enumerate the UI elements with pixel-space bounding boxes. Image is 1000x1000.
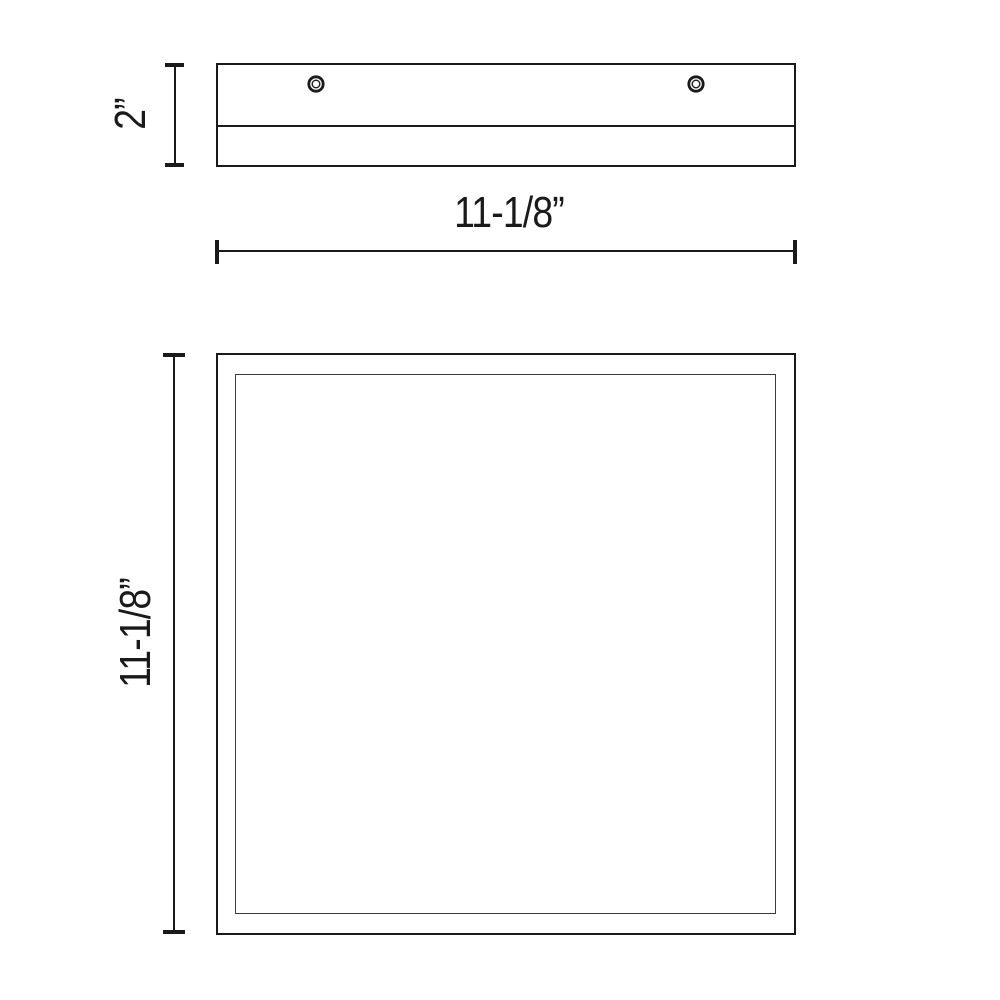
side-height-dimension-cap-bottom [165, 163, 184, 167]
mounting-screw-left-icon [306, 74, 326, 94]
dimension-drawing-canvas: 2” 11-1/8” 11-1/8” [0, 0, 1000, 1000]
front-height-dimension-label: 11-1/8” [114, 578, 158, 688]
width-dimension-label: 11-1/8” [454, 191, 564, 235]
front-view-inner-panel [235, 374, 776, 914]
front-height-dimension-cap-top [163, 353, 185, 357]
mounting-screw-right-icon [686, 74, 706, 94]
side-height-dimension-line [174, 65, 176, 166]
side-height-dimension-label: 2” [109, 98, 153, 130]
side-height-dimension-cap-top [165, 63, 184, 67]
side-view-seam-line [218, 125, 794, 127]
side-view-body-outline [216, 63, 796, 167]
width-dimension-tick-right [793, 240, 797, 264]
width-dimension-tick-left [215, 240, 219, 264]
front-height-dimension-line [173, 355, 175, 933]
width-dimension-line [217, 250, 795, 252]
front-height-dimension-cap-bottom [163, 930, 185, 934]
